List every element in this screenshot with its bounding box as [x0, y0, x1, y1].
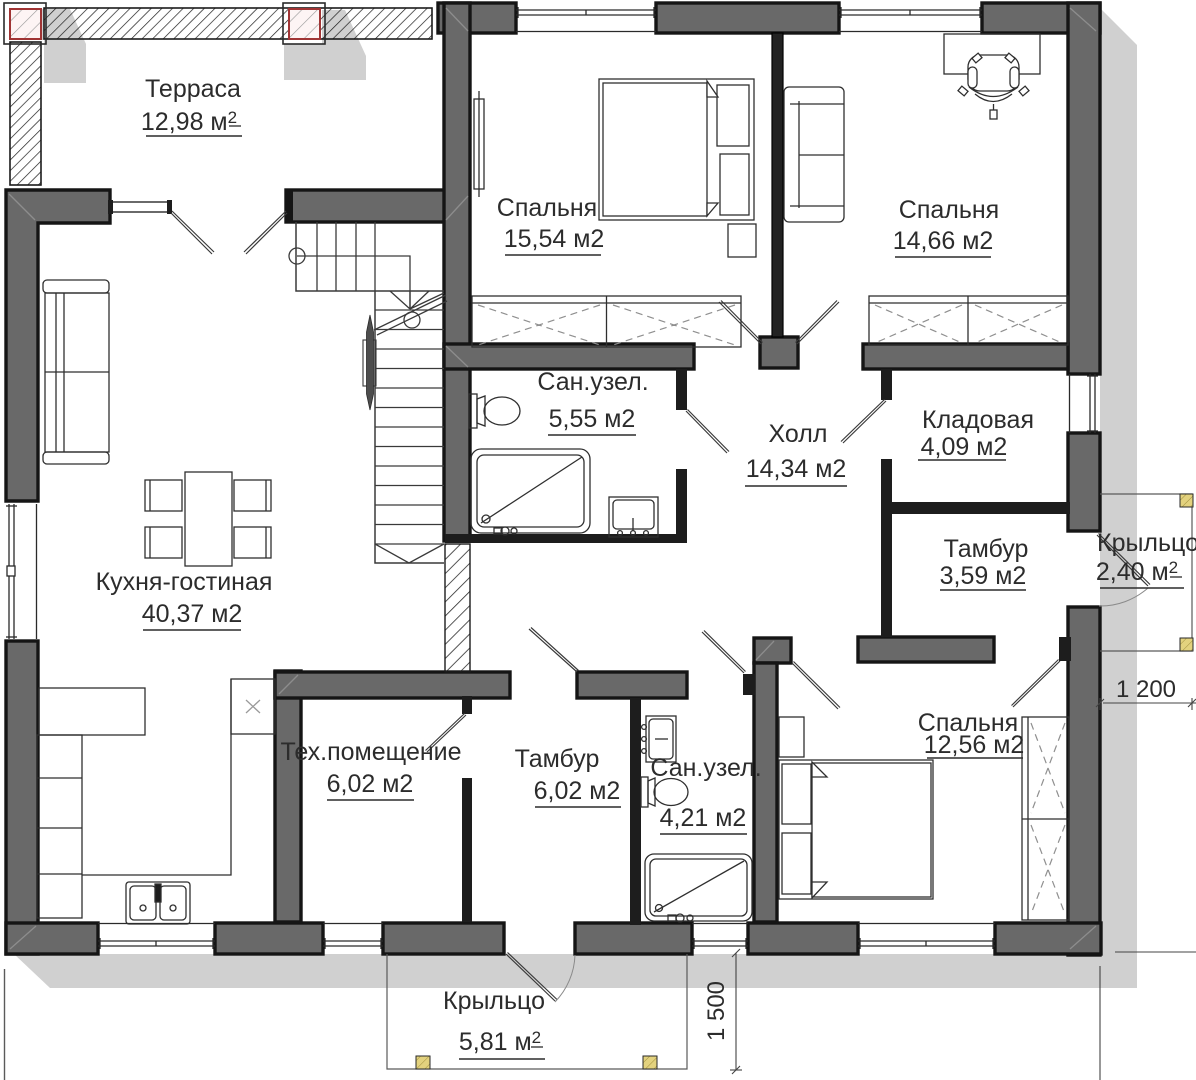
svg-text:5,81 м2: 5,81 м2: [459, 1028, 541, 1056]
svg-text:6,02 м2: 6,02 м2: [327, 770, 414, 798]
svg-text:14,66 м2: 14,66 м2: [893, 227, 994, 255]
svg-text:15,54 м2: 15,54 м2: [504, 225, 605, 253]
svg-text:Крыльцо: Крыльцо: [443, 987, 545, 1015]
svg-text:12,98 м2: 12,98 м2: [141, 108, 237, 136]
svg-text:Спальня: Спальня: [497, 194, 597, 222]
svg-text:2,40 м2: 2,40 м2: [1096, 558, 1178, 586]
svg-text:Кладовая: Кладовая: [922, 406, 1034, 434]
svg-text:Тамбур: Тамбур: [515, 745, 600, 773]
svg-text:Терраса: Терраса: [145, 75, 241, 103]
svg-text:14,34 м2: 14,34 м2: [746, 455, 847, 483]
svg-text:3,59 м2: 3,59 м2: [940, 562, 1027, 590]
svg-text:4,09 м2: 4,09 м2: [921, 433, 1008, 461]
svg-text:Сан.узел.: Сан.узел.: [650, 754, 761, 782]
svg-text:1 200: 1 200: [1116, 676, 1176, 703]
svg-text:4,21 м2: 4,21 м2: [660, 804, 747, 832]
svg-text:5,55 м2: 5,55 м2: [549, 405, 636, 433]
svg-text:Кухня-гостиная: Кухня-гостиная: [96, 568, 273, 596]
svg-text:6,02 м2: 6,02 м2: [534, 777, 621, 805]
svg-text:40,37 м2: 40,37 м2: [142, 600, 243, 628]
svg-text:Тех.помещение: Тех.помещение: [280, 738, 461, 766]
svg-text:Спальня: Спальня: [899, 196, 999, 224]
svg-text:Тамбур: Тамбур: [944, 535, 1029, 563]
svg-text:Холл: Холл: [769, 420, 828, 448]
svg-text:1 500: 1 500: [703, 981, 730, 1041]
svg-text:Крыльцо: Крыльцо: [1097, 529, 1196, 557]
svg-text:Сан.узел.: Сан.узел.: [537, 368, 648, 396]
svg-text:12,56 м2: 12,56 м2: [924, 731, 1025, 759]
